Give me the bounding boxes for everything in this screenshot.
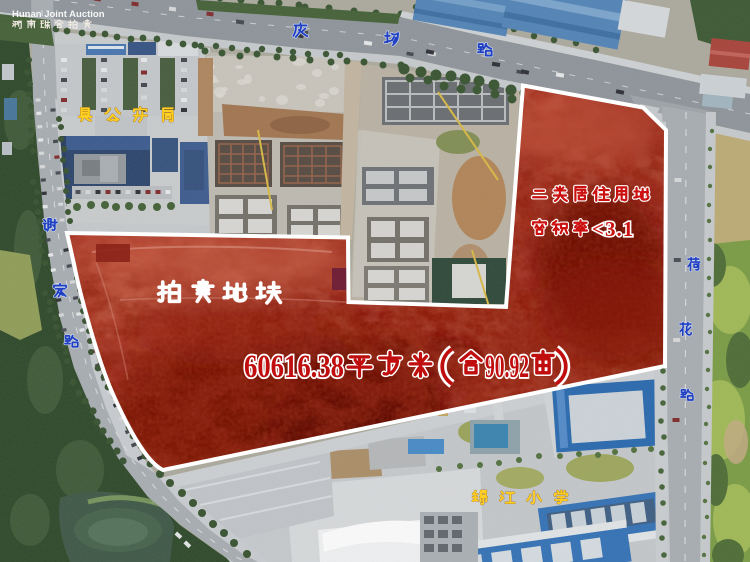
svg-text:<3.1: <3.1: [592, 217, 634, 241]
svg-text:Hunan Joint Auction: Hunan Joint Auction: [12, 9, 105, 20]
svg-text:90.92: 90.92: [485, 349, 529, 385]
svg-text:60616.38: 60616.38: [244, 349, 344, 385]
